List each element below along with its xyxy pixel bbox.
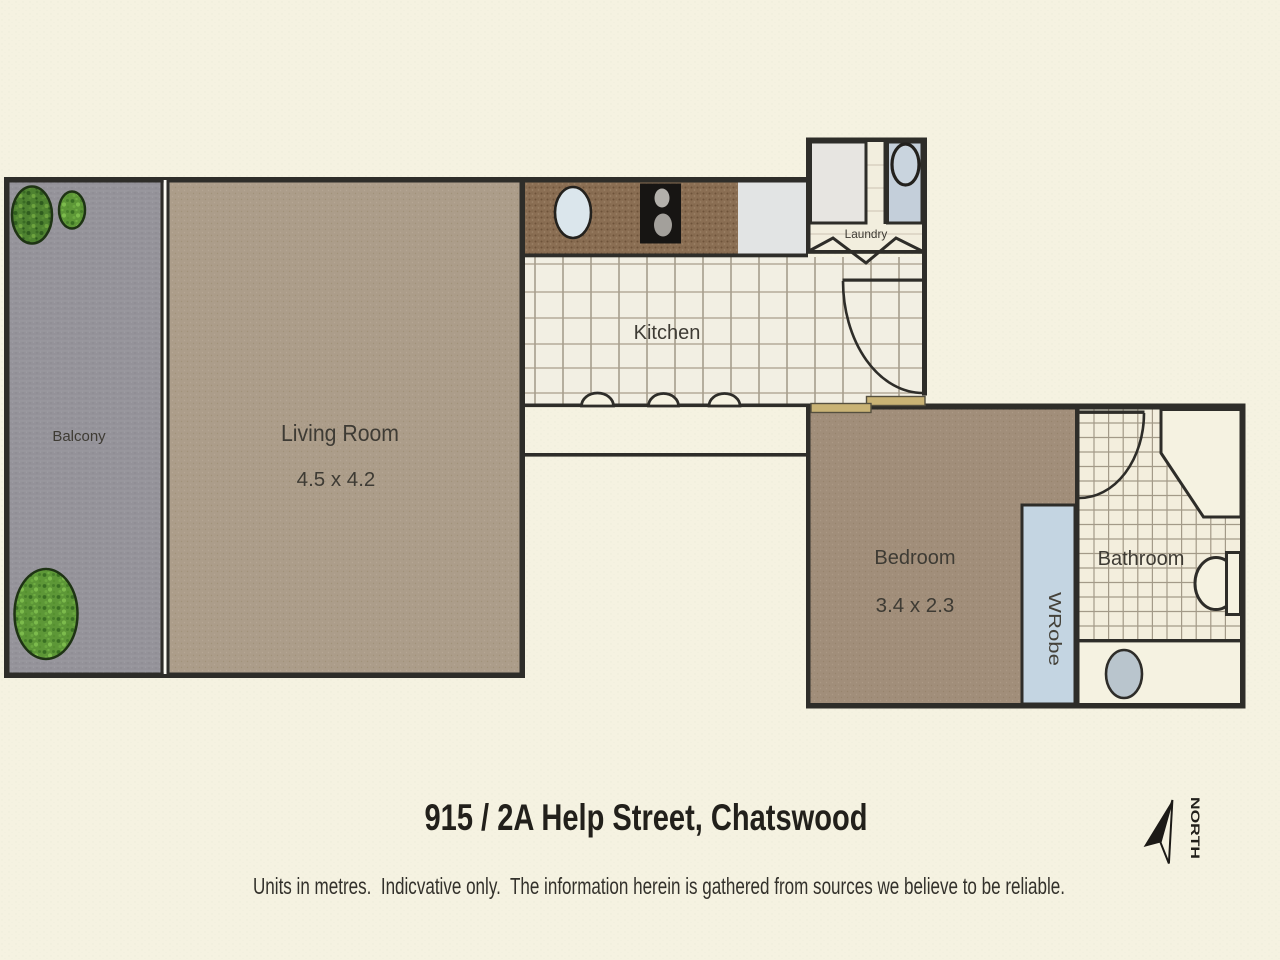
svg-text:4.5 x 4.2: 4.5 x 4.2 <box>297 468 376 491</box>
svg-text:Living Room: Living Room <box>281 420 399 446</box>
svg-text:NORTH: NORTH <box>1188 797 1200 859</box>
svg-text:WRobe: WRobe <box>1045 592 1065 666</box>
svg-text:Laundry: Laundry <box>845 227 888 241</box>
svg-text:Bedroom: Bedroom <box>874 547 955 569</box>
svg-text:Bathroom: Bathroom <box>1098 548 1185 570</box>
svg-text:915 / 2A Help Street, Chatswoo: 915 / 2A Help Street, Chatswood <box>425 797 868 838</box>
svg-text:Units in metres. Indicvative: Units in metres. Indicvative only. The i… <box>253 873 1065 899</box>
svg-text:3.4 x 2.3: 3.4 x 2.3 <box>876 594 955 617</box>
svg-text:Balcony: Balcony <box>52 428 106 445</box>
svg-text:Kitchen: Kitchen <box>634 322 701 344</box>
